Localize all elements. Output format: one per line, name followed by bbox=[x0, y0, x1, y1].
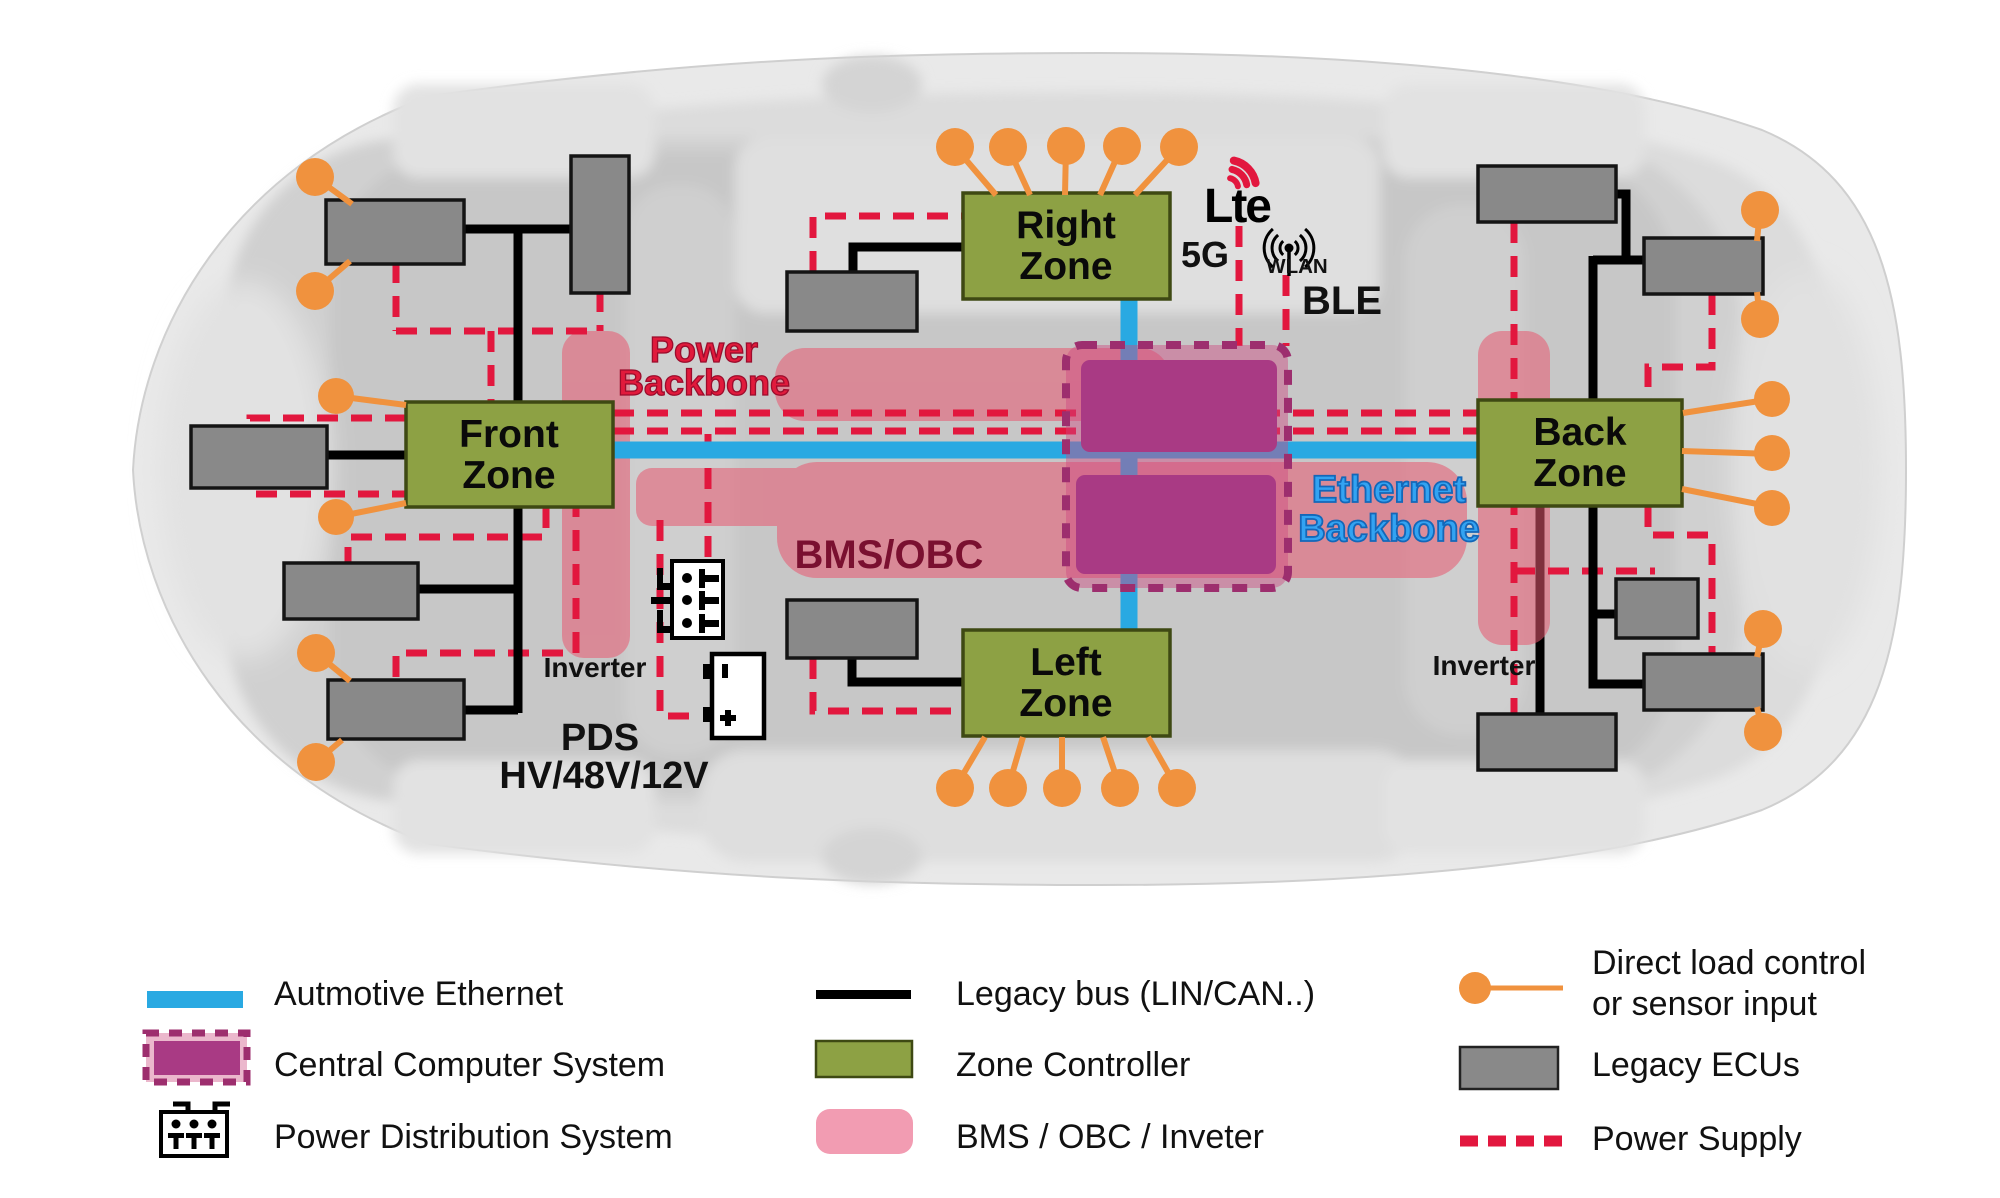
svg-text:BackZone: BackZone bbox=[1533, 411, 1627, 495]
svg-text:RightZone: RightZone bbox=[1016, 204, 1116, 288]
svg-text:Legacy bus (LIN/CAN..): Legacy bus (LIN/CAN..) bbox=[956, 975, 1315, 1013]
svg-text:WLAN: WLAN bbox=[1266, 255, 1327, 278]
svg-text:HV/48V/12V: HV/48V/12V bbox=[499, 755, 709, 797]
svg-text:Zone Controller: Zone Controller bbox=[956, 1046, 1190, 1084]
svg-text:FrontZone: FrontZone bbox=[459, 413, 559, 497]
svg-text:Inverter: Inverter bbox=[1433, 650, 1536, 681]
svg-text:EthernetBackbone: EthernetBackbone bbox=[1298, 469, 1480, 550]
svg-text:Power Supply: Power Supply bbox=[1592, 1120, 1802, 1158]
svg-text:BMS/OBC: BMS/OBC bbox=[795, 533, 984, 577]
svg-text:or sensor input: or sensor input bbox=[1592, 985, 1817, 1023]
svg-text:Central Computer System: Central Computer System bbox=[274, 1046, 665, 1084]
svg-text:PDS: PDS bbox=[561, 717, 639, 759]
svg-text:BMS / OBC / Inveter: BMS / OBC / Inveter bbox=[956, 1118, 1264, 1156]
svg-text:5G: 5G bbox=[1181, 234, 1229, 275]
svg-text:LeftZone: LeftZone bbox=[1019, 641, 1112, 725]
svg-text:Legacy ECUs: Legacy ECUs bbox=[1592, 1046, 1800, 1084]
svg-text:Direct load control: Direct load control bbox=[1592, 944, 1866, 982]
svg-text:BLE: BLE bbox=[1302, 279, 1382, 323]
svg-text:Autmotive Ethernet: Autmotive Ethernet bbox=[274, 975, 564, 1013]
svg-text:Inverter: Inverter bbox=[544, 652, 647, 683]
svg-text:Power Distribution System: Power Distribution System bbox=[274, 1118, 673, 1156]
